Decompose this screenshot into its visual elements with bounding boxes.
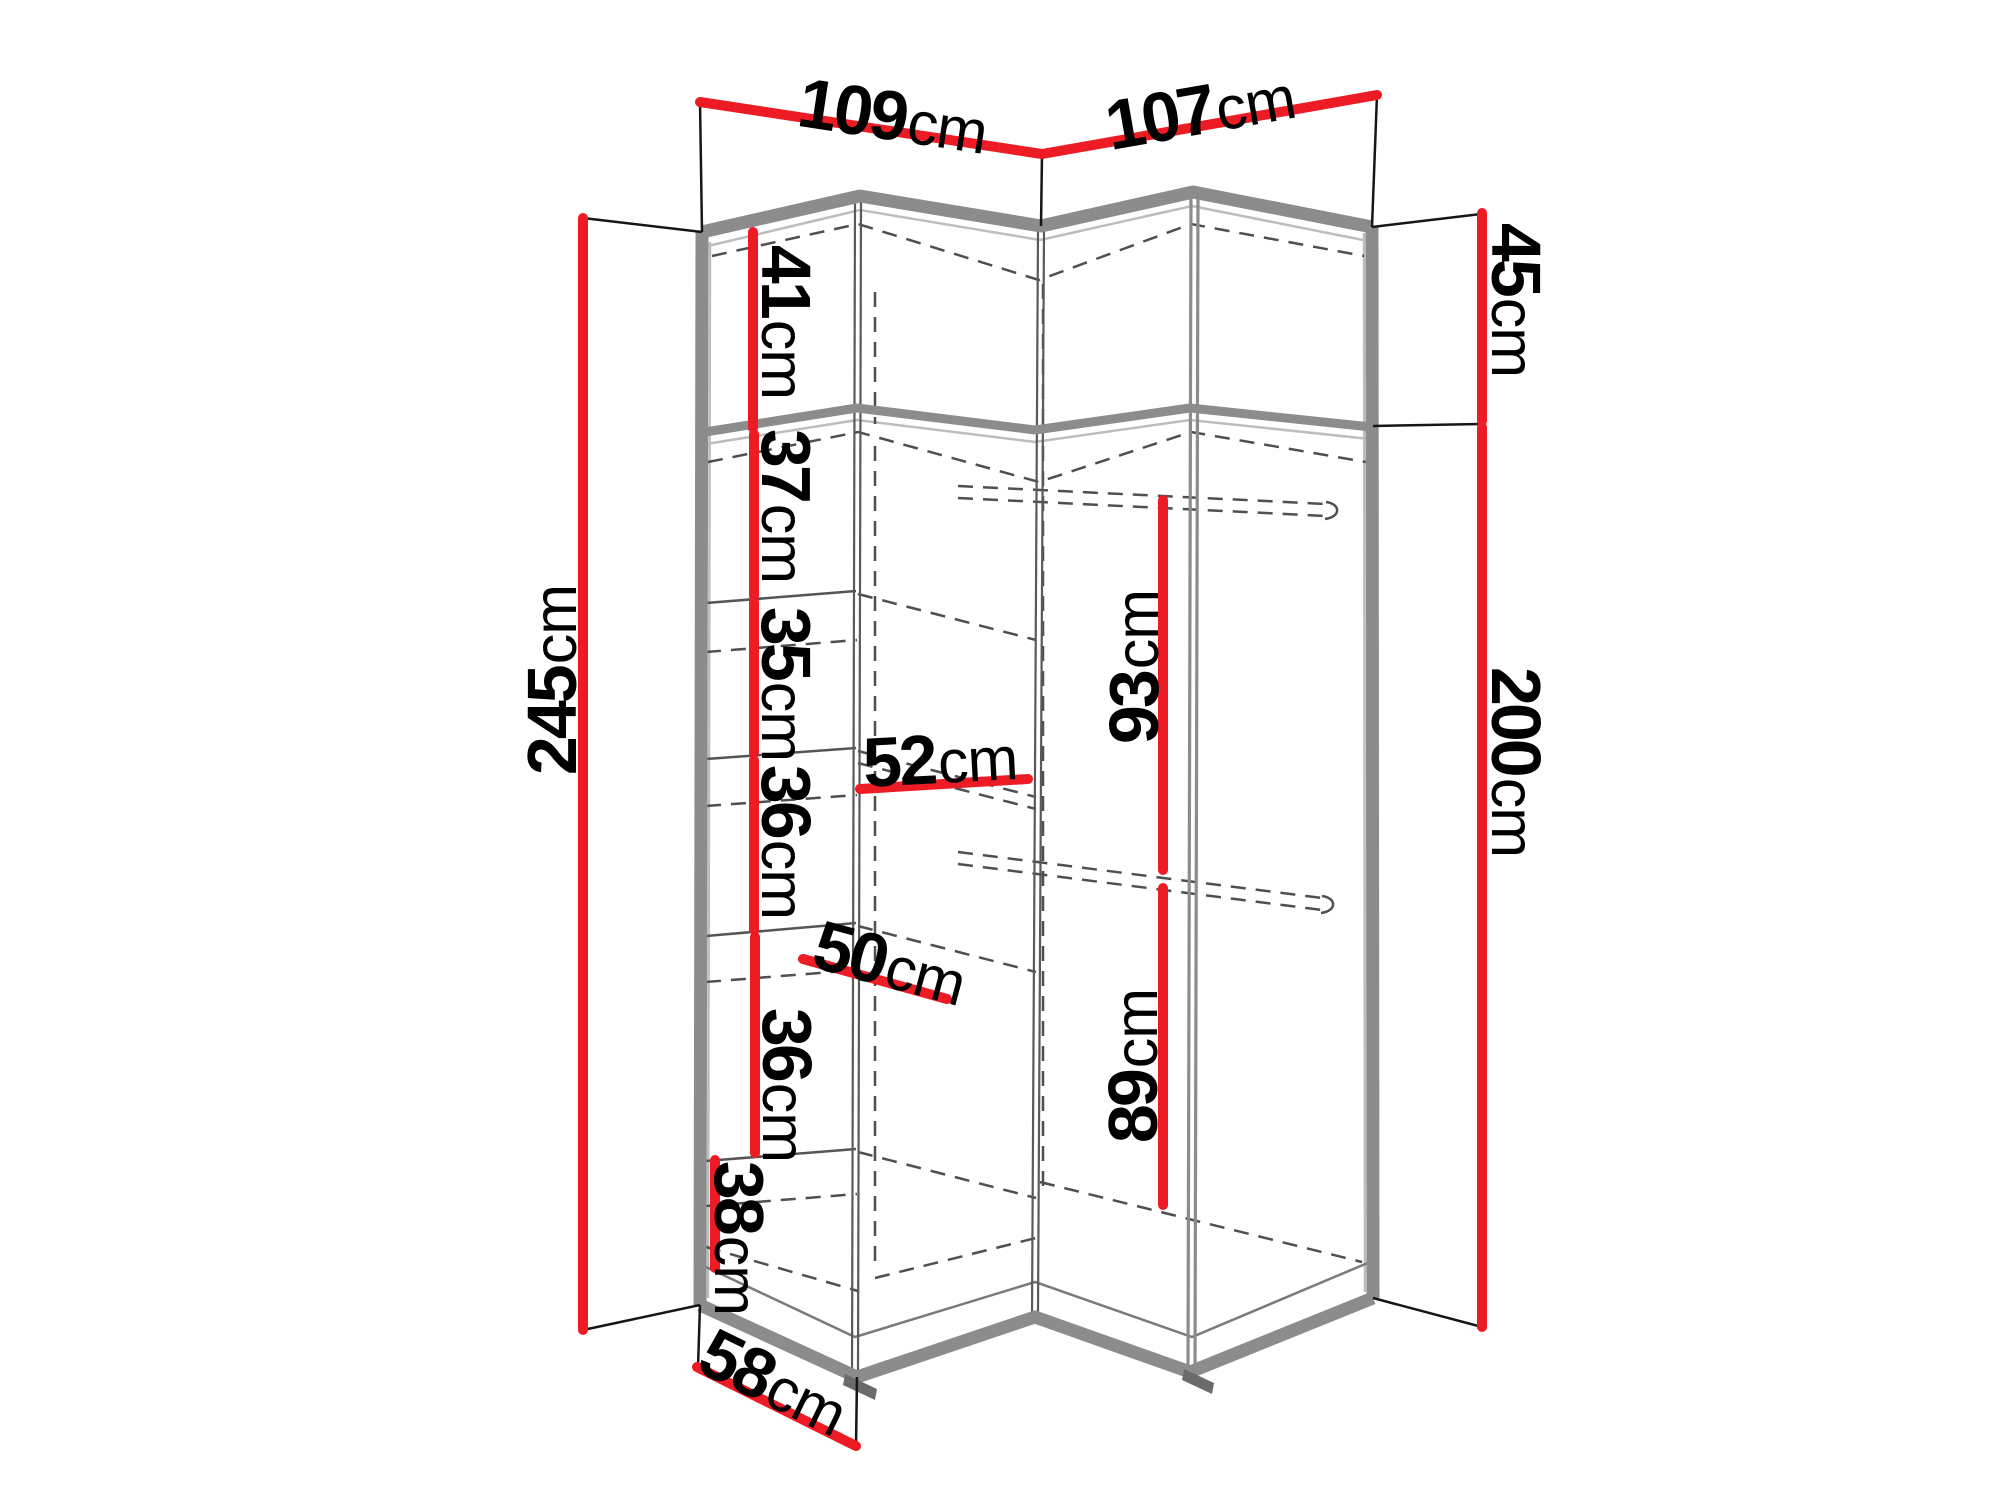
dim-200-unit: cm [1479,778,1547,857]
top-edge [702,192,1372,232]
dim-45-value: 45 [1477,223,1555,295]
dim-38-label: 38cm [704,1161,774,1315]
dim-38-unit: cm [702,1236,770,1315]
upper-hanging-rail [958,486,1326,516]
upper-rail-end [1325,502,1337,519]
wardrobe-dimension-diagram: 109cm 107cm 45cm 200cm 245cm 41cm 37cm 3… [0,0,2000,1500]
dim-37-label: 37cm [751,429,821,583]
left-wall [700,232,702,1305]
dim-35-unit: cm [749,682,817,761]
dim-52-value: 52 [861,720,937,802]
dim-93-value: 93 [1095,672,1173,744]
dim-37-value: 37 [747,429,825,501]
dim-200-label: 200cm [1481,667,1551,857]
dim-41-label: 41cm [751,245,821,399]
dim-36a-unit: cm [749,840,817,919]
right-wall [1372,227,1373,1298]
dim-45-label: 45cm [1481,223,1551,377]
dim-93-label: 93cm [1099,590,1169,744]
dim-36b-label: 36cm [752,1008,822,1162]
dim-89-label: 89cm [1098,989,1168,1143]
dim-200-value: 200 [1477,667,1555,775]
dim-37-unit: cm [749,504,817,583]
dim-89-value: 89 [1094,1071,1172,1143]
dim-245-unit: cm [521,585,589,664]
dim-89-unit: cm [1102,989,1170,1068]
feet [843,1369,1214,1400]
dim-35-value: 35 [747,607,825,679]
dim-245-label: 245cm [517,585,587,775]
dim-36a-label: 36cm [751,765,821,919]
dim-41-unit: cm [749,320,817,399]
dim-36a-value: 36 [747,765,825,837]
front-edge-right-cabinet [1188,194,1198,1371]
dim-52-unit: cm [936,724,1019,796]
dim-109-unit: cm [903,88,992,167]
dim-35-label: 35cm [751,607,821,761]
dim-36b-unit: cm [750,1083,818,1162]
dim-52-label: 52cm [861,720,1019,798]
dim-41-value: 41 [747,245,825,317]
dim-109-value: 109 [793,63,911,156]
dim-245-value: 245 [513,667,591,775]
dim-93-unit: cm [1103,590,1171,669]
dim-38-value: 38 [700,1161,778,1233]
dim-107-unit: cm [1210,63,1300,144]
dim-45-unit: cm [1479,298,1547,377]
lower-hanging-rail [958,852,1322,910]
lower-rail-end [1321,896,1333,913]
dim-36b-value: 36 [748,1008,826,1080]
